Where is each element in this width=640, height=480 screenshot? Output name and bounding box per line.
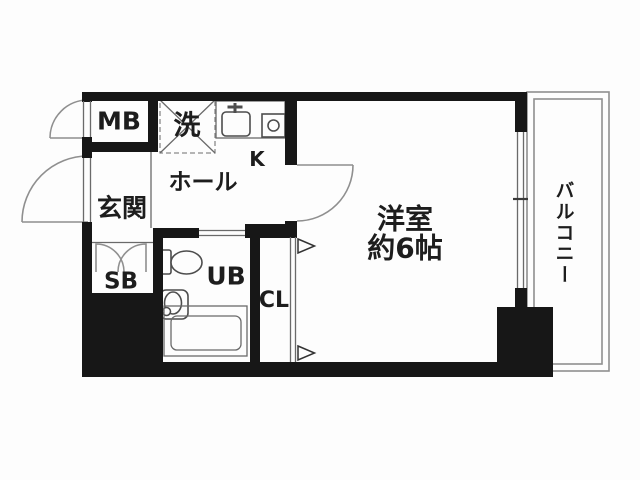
western-room-name: 洋室 <box>367 205 442 234</box>
laundry-label: 洗 <box>174 113 201 140</box>
entrance-door-jamb <box>84 158 91 222</box>
bath-door-line <box>199 231 245 236</box>
western-room-size: 約6帖 <box>367 234 442 263</box>
toilet-icon <box>157 250 202 274</box>
room-door-icon <box>297 165 353 221</box>
floorplan-drawing <box>0 0 640 480</box>
balcony-label: バルコニー <box>554 181 573 286</box>
shoe-box-label: SB <box>104 271 138 294</box>
unit-bath-label: UB <box>206 264 245 289</box>
western-room-label: 洋室 約6帖 <box>367 205 442 264</box>
entrance-label: 玄関 <box>97 196 147 221</box>
hall-label: ホール <box>169 172 238 195</box>
floorplan: MB 洗 K ホール 玄関 SB UB CL 洋室 約6帖 バルコニー <box>0 0 640 480</box>
meter-box-label: MB <box>97 109 141 134</box>
walls <box>82 92 553 377</box>
pillar-bottom-left <box>88 293 153 377</box>
mb-door-jamb <box>84 101 91 137</box>
pillar-bottom-right <box>497 307 553 377</box>
closet-door-line <box>291 237 296 362</box>
kitchen-label: K <box>249 149 265 169</box>
closet-label: CL <box>259 290 289 312</box>
balcony-window-icon <box>513 132 528 288</box>
kitchen-counter-icon <box>216 101 285 138</box>
kitchen-sink-icon <box>222 112 250 136</box>
meter-box-door-icon <box>50 100 88 138</box>
closet-door-triangles <box>298 239 315 360</box>
entrance-door-icon <box>22 156 88 222</box>
